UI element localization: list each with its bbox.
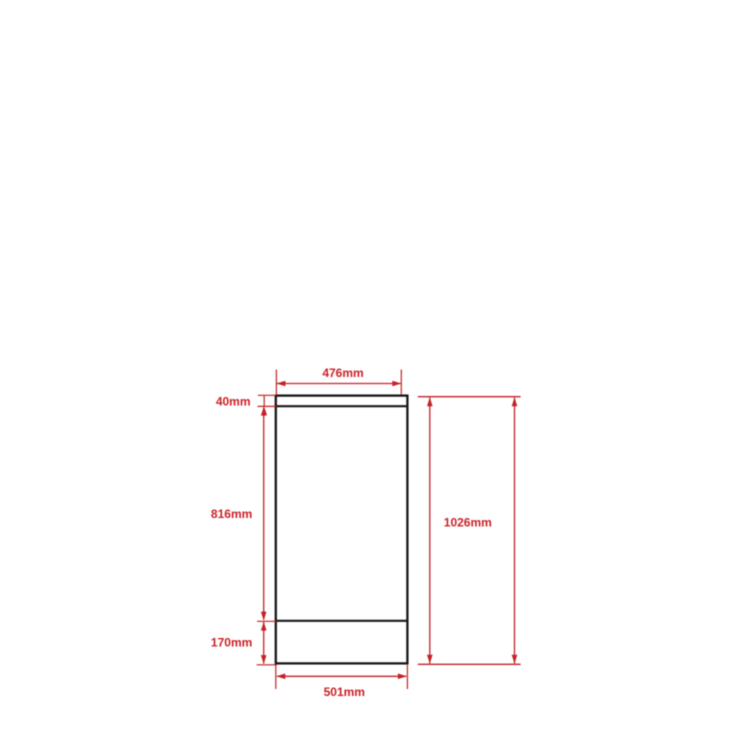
svg-text:501mm: 501mm: [324, 685, 365, 699]
svg-text:816mm: 816mm: [211, 507, 252, 521]
svg-text:40mm: 40mm: [216, 395, 251, 409]
svg-text:1026mm: 1026mm: [444, 515, 492, 529]
svg-text:476mm: 476mm: [322, 366, 363, 380]
svg-text:170mm: 170mm: [211, 635, 252, 649]
